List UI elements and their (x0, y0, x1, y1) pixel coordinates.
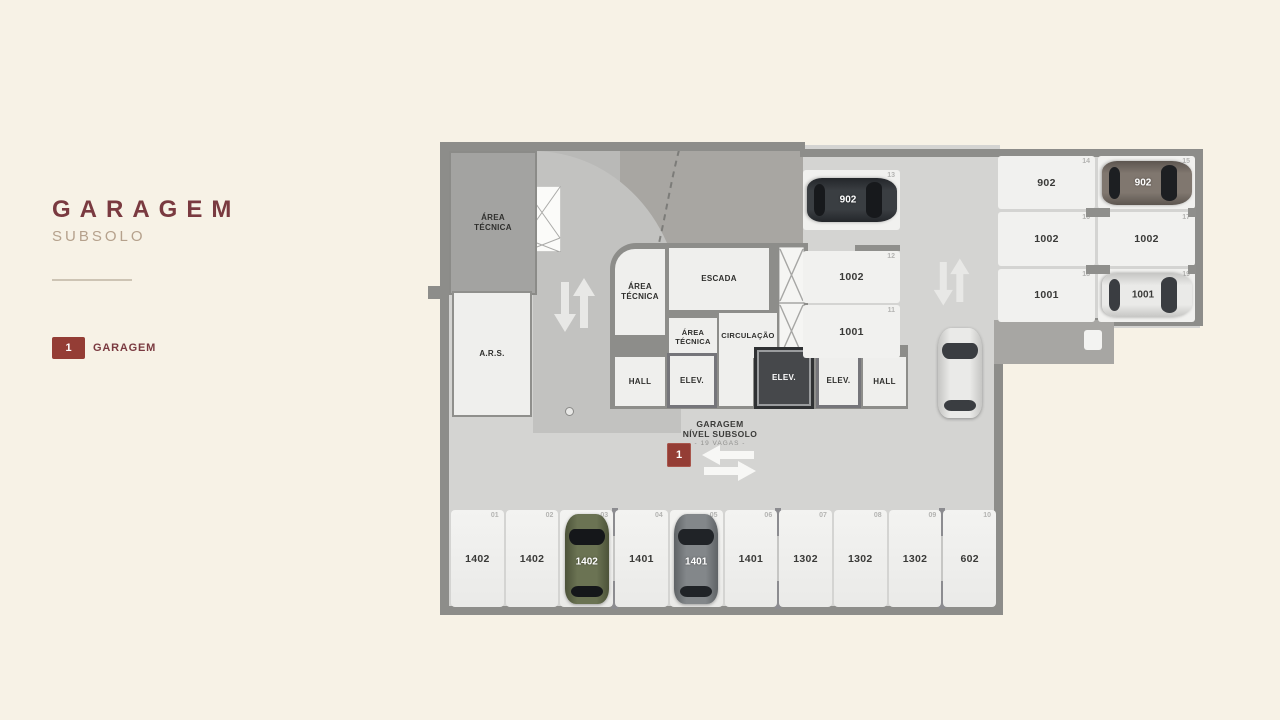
parking-spot-12: 121002 (803, 251, 900, 303)
floor-patch-circulacao (719, 358, 753, 406)
spot-number: 10 (983, 512, 991, 519)
door-marker-icon (565, 407, 574, 416)
parking-spot-18: 181001 (998, 269, 1095, 322)
spot-label: 602 (960, 553, 978, 565)
parking-spot-02: 021402 (506, 510, 559, 607)
room-escada: ESCADA (669, 248, 769, 310)
parking-spot-03: 031402 (560, 510, 613, 607)
garage-label-line2: NÍVEL SUBSOLO (640, 429, 800, 439)
car-brown: 902 (1102, 161, 1192, 205)
garage-label-line1: GARAGEM (640, 419, 800, 429)
car-white: 1001 (1102, 273, 1192, 317)
room-label: HALL (873, 377, 896, 387)
room-area-tecnica-3: ÁREA TÉCNICA (669, 318, 717, 356)
page: GARAGEM SUBSOLO 1 GARAGEM (0, 0, 1280, 720)
spot-label: 902 (1037, 177, 1055, 189)
spot-number: 06 (764, 512, 772, 519)
wall-stub-mid (855, 245, 900, 251)
parking-spot-05: 051401 (670, 510, 723, 607)
leftright-arrows-icon (700, 445, 758, 481)
spot-number: 04 (655, 512, 663, 519)
spot-label: 1302 (848, 553, 873, 565)
car-plate-label: 902 (840, 195, 857, 206)
parking-spot-15: 15902 (1098, 156, 1195, 209)
updown-arrows-left-icon (552, 276, 598, 334)
parking-spot-04: 041401 (615, 510, 668, 607)
room-label: CIRCULAÇÃO (721, 331, 774, 340)
car-white-aisle (938, 328, 982, 418)
parking-spot-17: 171002 (1098, 212, 1195, 265)
spot-number: 11 (888, 307, 895, 314)
wall-bottom (440, 606, 1002, 615)
room-elevator-right: ELEV. (816, 353, 861, 408)
room-label: A.R.S. (479, 349, 504, 359)
spot-number: 14 (1082, 158, 1090, 165)
car-green: 1402 (565, 514, 609, 604)
right-parking-block: 1490215902161002171002181001191001 (998, 156, 1195, 322)
spot-number: 12 (887, 253, 895, 260)
car-plate-label: 1401 (685, 557, 707, 568)
spot-number: 08 (874, 512, 882, 519)
car-plate-label: 1402 (576, 557, 598, 568)
parking-spot-11: 111001 (803, 305, 900, 358)
step-door (1084, 330, 1102, 350)
parking-spot-09: 091302 (889, 510, 942, 607)
spot-label: 1302 (793, 553, 818, 565)
spot-label: 1002 (1134, 233, 1159, 245)
garage-level-label: GARAGEM NÍVEL SUBSOLO - 19 VAGAS - (640, 419, 800, 447)
room-hall-right: HALL (863, 357, 906, 406)
spot-number: 02 (546, 512, 554, 519)
spot-label: 1401 (629, 553, 654, 565)
car-dark: 902 (807, 178, 897, 222)
spot-label: 1002 (1034, 233, 1059, 245)
room-label: ELEV. (772, 373, 796, 383)
spot-number: 07 (819, 512, 827, 519)
parking-spot-08: 081302 (834, 510, 887, 607)
bottom-parking-row: 0114020214020314020414010514010614010713… (451, 510, 996, 607)
wall-right-wing-right (1194, 149, 1203, 326)
room-hall-left: HALL (615, 357, 665, 406)
parking-spot-13: 13902 (803, 170, 900, 230)
parking-spot-06: 061401 (725, 510, 778, 607)
parking-spot-10: 10602 (943, 510, 996, 607)
spot-label: 1001 (1034, 289, 1059, 301)
wall-stub-rb-3 (1188, 208, 1196, 217)
wall-stub-rb-1 (1086, 208, 1110, 217)
parking-spot-14: 14902 (998, 156, 1095, 209)
wall-stub-rb-2 (1086, 265, 1110, 274)
parking-spot-07: 071302 (779, 510, 832, 607)
elevator-shaft-icon (779, 247, 804, 359)
car-plate-label: 902 (1135, 177, 1152, 188)
spot-number: 13 (887, 172, 895, 179)
wall-left (440, 142, 449, 614)
wall-left-stub (428, 286, 443, 299)
floor-plan: ÁREA TÉCNICA A.R.S. ÁREA TÉCNICA ESCADA … (0, 0, 1280, 720)
car-plate-label: 1001 (1132, 290, 1154, 301)
spot-number: 09 (929, 512, 937, 519)
updown-arrows-right-icon (932, 256, 972, 308)
parking-spot-16: 161002 (998, 212, 1095, 265)
level-badge: 1 (667, 443, 691, 467)
wall-top-left (440, 142, 805, 151)
room-elevator-left: ELEV. (667, 353, 717, 408)
car-gray: 1401 (674, 514, 718, 604)
room-area-tecnica-2: ÁREA TÉCNICA (615, 249, 665, 335)
spot-label: 1402 (465, 553, 490, 565)
spot-label: 1001 (839, 326, 864, 338)
parking-spot-01: 011402 (451, 510, 504, 607)
room-label: ELEV. (827, 376, 851, 386)
room-label: ÁREA TÉCNICA (470, 213, 516, 233)
mid-parking-column: 13902121002111001 (803, 170, 900, 360)
wall-stub-rb-4 (1188, 265, 1196, 274)
spot-label: 1302 (903, 553, 928, 565)
spot-label: 1002 (839, 271, 864, 283)
room-label: ÁREA TÉCNICA (671, 328, 715, 347)
room-ars: A.R.S. (452, 291, 532, 417)
room-label: ESCADA (701, 274, 737, 284)
room-label: ÁREA TÉCNICA (618, 282, 662, 302)
room-area-tecnica-1: ÁREA TÉCNICA (449, 151, 537, 295)
spot-number: 01 (491, 512, 499, 519)
room-label: HALL (629, 377, 652, 387)
parking-spot-19: 191001 (1098, 269, 1195, 322)
spot-label: 1402 (520, 553, 545, 565)
room-label: ELEV. (680, 376, 704, 386)
spot-label: 1401 (739, 553, 764, 565)
